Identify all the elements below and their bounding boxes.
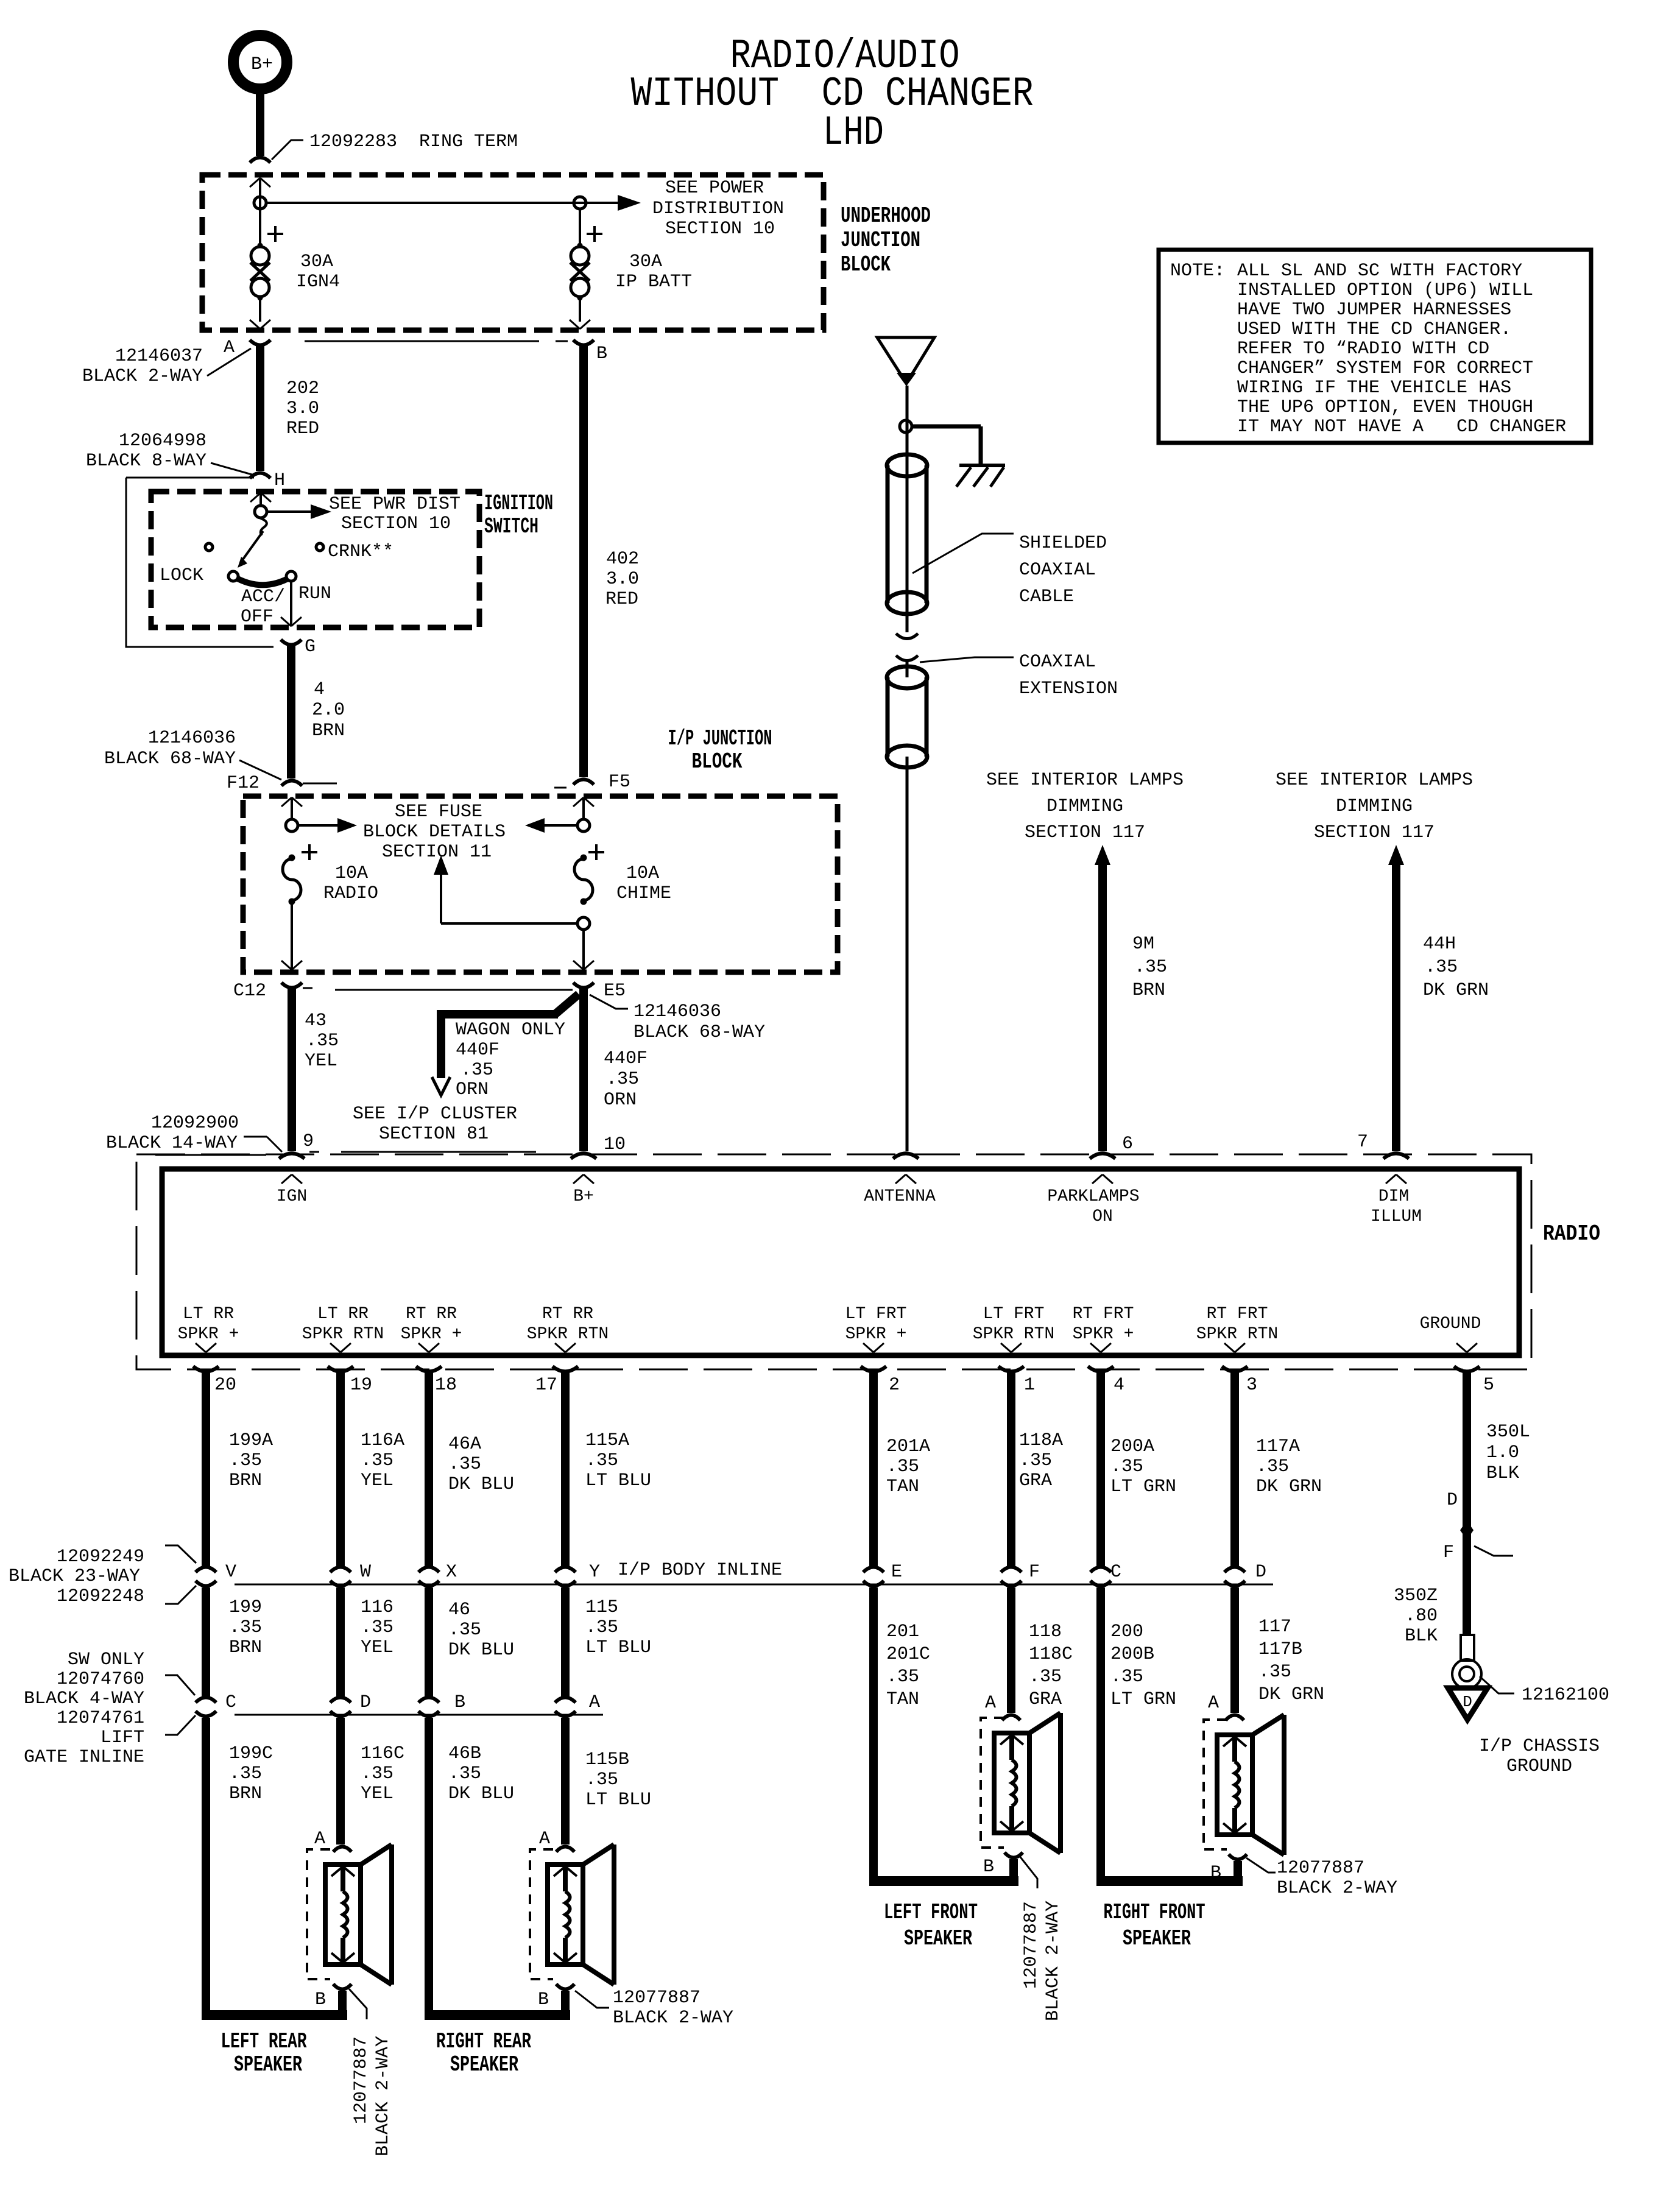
svg-text:ON: ON bbox=[1092, 1207, 1113, 1226]
svg-text:3.0: 3.0 bbox=[606, 569, 639, 590]
svg-text:.35: .35 bbox=[1256, 1456, 1289, 1477]
svg-text:SPEAKER: SPEAKER bbox=[450, 2052, 518, 2077]
svg-text:B: B bbox=[983, 1857, 994, 1877]
svg-text:JUNCTION: JUNCTION bbox=[841, 228, 920, 253]
svg-text:BRN: BRN bbox=[312, 721, 345, 741]
svg-text:.35: .35 bbox=[886, 1667, 919, 1687]
svg-text:B: B bbox=[315, 1989, 326, 2010]
svg-text:.35: .35 bbox=[306, 1031, 339, 1051]
svg-text:SPKR +: SPKR + bbox=[401, 1325, 462, 1344]
svg-text:12162100: 12162100 bbox=[1522, 1685, 1609, 1706]
svg-text:CABLE: CABLE bbox=[1019, 587, 1074, 607]
svg-text:I/P BODY INLINE: I/P BODY INLINE bbox=[618, 1560, 782, 1581]
svg-text:LHD: LHD bbox=[823, 110, 884, 157]
svg-text:SPEAKER: SPEAKER bbox=[234, 2052, 302, 2077]
svg-text:SPKR RTN: SPKR RTN bbox=[973, 1325, 1054, 1344]
svg-text:.35: .35 bbox=[585, 1450, 618, 1471]
svg-text:DK BLU: DK BLU bbox=[448, 1474, 514, 1495]
svg-text:.35: .35 bbox=[448, 1763, 481, 1784]
svg-text:IGNITION: IGNITION bbox=[484, 491, 553, 516]
svg-text:YEL: YEL bbox=[361, 1637, 394, 1658]
svg-text:A: A bbox=[589, 1692, 600, 1713]
svg-text:BLK: BLK bbox=[1486, 1463, 1519, 1484]
svg-text:115A: 115A bbox=[585, 1430, 629, 1451]
svg-text:118: 118 bbox=[1029, 1622, 1062, 1642]
svg-text:TAN: TAN bbox=[886, 1689, 919, 1710]
svg-text:A: A bbox=[539, 1829, 550, 1849]
svg-text:117: 117 bbox=[1258, 1617, 1291, 1637]
svg-text:RADIO: RADIO bbox=[1543, 1221, 1600, 1246]
svg-text:.35: .35 bbox=[361, 1617, 394, 1638]
svg-text:F: F bbox=[1029, 1562, 1040, 1583]
svg-text:SPEAKER: SPEAKER bbox=[1123, 1926, 1191, 1951]
svg-text:RIGHT FRONT: RIGHT FRONT bbox=[1104, 1900, 1205, 1925]
svg-text:BLACK 2-WAY: BLACK 2-WAY bbox=[82, 366, 203, 387]
svg-text:W: W bbox=[360, 1562, 371, 1583]
svg-text:UNDERHOOD: UNDERHOOD bbox=[841, 203, 931, 228]
svg-text:12077887: 12077887 bbox=[1277, 1858, 1364, 1879]
svg-text:DK GRN: DK GRN bbox=[1256, 1477, 1322, 1497]
svg-text:12146036: 12146036 bbox=[148, 728, 236, 749]
svg-text:12092248: 12092248 bbox=[57, 1586, 144, 1607]
svg-text:199: 199 bbox=[229, 1597, 262, 1618]
svg-text:30A: 30A bbox=[629, 252, 662, 272]
svg-text:12077887: 12077887 bbox=[351, 2036, 372, 2124]
svg-text:CHIME: CHIME bbox=[616, 883, 671, 904]
svg-text:SHIELDED: SHIELDED bbox=[1019, 533, 1107, 554]
svg-text:12092283 RING TERM: 12092283 RING TERM bbox=[309, 132, 518, 152]
svg-text:BLACK 8-WAY: BLACK 8-WAY bbox=[86, 451, 206, 471]
svg-text:3.0: 3.0 bbox=[286, 398, 319, 419]
svg-text:.35: .35 bbox=[1110, 1456, 1143, 1477]
svg-text:RT FRT: RT FRT bbox=[1073, 1305, 1134, 1324]
svg-text:.35: .35 bbox=[448, 1454, 481, 1475]
svg-text:10A: 10A bbox=[335, 863, 368, 884]
svg-text:YEL: YEL bbox=[361, 1470, 394, 1491]
svg-text:G: G bbox=[305, 637, 316, 657]
svg-text:12092249: 12092249 bbox=[57, 1547, 144, 1567]
svg-text:17: 17 bbox=[535, 1375, 557, 1396]
svg-text:D: D bbox=[1255, 1562, 1266, 1583]
svg-text:SPKR +: SPKR + bbox=[845, 1325, 907, 1344]
svg-text:BLACK 68-WAY: BLACK 68-WAY bbox=[104, 749, 236, 769]
svg-text:201: 201 bbox=[886, 1622, 919, 1642]
svg-text:200B: 200B bbox=[1110, 1644, 1154, 1665]
svg-text:RADIO: RADIO bbox=[323, 883, 378, 904]
svg-text:DK GRN: DK GRN bbox=[1258, 1684, 1324, 1705]
svg-text:SECTION 10: SECTION 10 bbox=[341, 514, 451, 534]
svg-text:C12: C12 bbox=[233, 981, 266, 1001]
svg-text:BLOCK: BLOCK bbox=[692, 749, 743, 774]
svg-text:SPKR RTN: SPKR RTN bbox=[527, 1325, 609, 1344]
svg-text:SEE INTERIOR LAMPS: SEE INTERIOR LAMPS bbox=[1276, 770, 1473, 791]
svg-text:SEE POWER: SEE POWER bbox=[665, 178, 764, 199]
svg-text:10: 10 bbox=[604, 1134, 626, 1155]
svg-text:.35: .35 bbox=[1258, 1662, 1291, 1682]
svg-text:SPKR +: SPKR + bbox=[178, 1325, 239, 1344]
svg-text:LT FRT: LT FRT bbox=[845, 1305, 907, 1324]
svg-text:LT FRT: LT FRT bbox=[983, 1305, 1045, 1324]
svg-text:LEFT REAR: LEFT REAR bbox=[221, 2029, 307, 2054]
svg-text:B: B bbox=[454, 1692, 465, 1713]
svg-text:ACC/: ACC/ bbox=[241, 587, 285, 607]
svg-text:IGN4: IGN4 bbox=[296, 272, 340, 292]
svg-text:18: 18 bbox=[435, 1375, 457, 1396]
svg-text:SECTION 117: SECTION 117 bbox=[1025, 822, 1145, 843]
svg-text:GROUND: GROUND bbox=[1506, 1756, 1572, 1777]
svg-text:RED: RED bbox=[605, 589, 638, 610]
svg-text:SPEAKER: SPEAKER bbox=[904, 1926, 972, 1951]
svg-text:46A: 46A bbox=[448, 1434, 481, 1455]
svg-text:12074761: 12074761 bbox=[57, 1708, 144, 1729]
svg-text:.35: .35 bbox=[1425, 957, 1458, 978]
svg-text:.35: .35 bbox=[585, 1617, 618, 1638]
svg-text:.35: .35 bbox=[461, 1060, 493, 1081]
svg-text:3: 3 bbox=[1246, 1375, 1257, 1396]
svg-text:BLK: BLK bbox=[1405, 1626, 1438, 1647]
svg-text:SPKR +: SPKR + bbox=[1073, 1325, 1134, 1344]
svg-text:4: 4 bbox=[314, 679, 325, 700]
svg-text:BLACK 4-WAY: BLACK 4-WAY bbox=[24, 1689, 144, 1709]
svg-text:116C: 116C bbox=[361, 1743, 404, 1764]
svg-text:EXTENSION: EXTENSION bbox=[1019, 679, 1118, 699]
svg-text:B: B bbox=[596, 344, 607, 364]
svg-text:BRN: BRN bbox=[229, 1637, 262, 1658]
svg-text:BLOCK: BLOCK bbox=[841, 252, 891, 277]
svg-text:43: 43 bbox=[305, 1011, 326, 1031]
svg-text:REFER TO “RADIO WITH CD: REFER TO “RADIO WITH CD bbox=[1237, 339, 1489, 359]
svg-text:BLACK 23-WAY: BLACK 23-WAY bbox=[9, 1566, 140, 1587]
svg-text:COAXIAL: COAXIAL bbox=[1019, 560, 1096, 581]
svg-text:SEE I/P CLUSTER: SEE I/P CLUSTER bbox=[353, 1104, 517, 1124]
svg-text:350L: 350L bbox=[1486, 1422, 1530, 1442]
svg-text:9M: 9M bbox=[1132, 934, 1154, 955]
svg-text:E: E bbox=[891, 1562, 902, 1583]
svg-text:118A: 118A bbox=[1019, 1430, 1063, 1451]
svg-text:D: D bbox=[360, 1692, 371, 1713]
svg-text:X: X bbox=[446, 1562, 457, 1583]
svg-text:USED WITH THE CD CHANGER.: USED WITH THE CD CHANGER. bbox=[1237, 319, 1511, 340]
svg-text:ALL SL AND SC WITH FACTORY: ALL SL AND SC WITH FACTORY bbox=[1237, 261, 1522, 281]
svg-text:199A: 199A bbox=[229, 1430, 273, 1451]
svg-text:ORN: ORN bbox=[456, 1079, 489, 1100]
svg-text:BRN: BRN bbox=[1132, 980, 1165, 1001]
svg-text:A: A bbox=[224, 337, 235, 358]
svg-text:.35: .35 bbox=[1110, 1667, 1143, 1687]
svg-text:SW ONLY: SW ONLY bbox=[68, 1650, 144, 1670]
svg-text:SPKR RTN: SPKR RTN bbox=[302, 1325, 384, 1344]
svg-text:12074760: 12074760 bbox=[57, 1669, 144, 1690]
svg-text:7: 7 bbox=[1357, 1132, 1368, 1153]
svg-text:.35: .35 bbox=[361, 1763, 394, 1784]
svg-text:200: 200 bbox=[1110, 1622, 1143, 1642]
svg-text:BLACK 68-WAY: BLACK 68-WAY bbox=[634, 1022, 765, 1043]
svg-text:BRN: BRN bbox=[229, 1784, 262, 1804]
svg-text:I/P CHASSIS: I/P CHASSIS bbox=[1479, 1736, 1600, 1757]
svg-text:200A: 200A bbox=[1110, 1436, 1154, 1457]
svg-text:DIMMING: DIMMING bbox=[1336, 796, 1413, 817]
svg-text:10A: 10A bbox=[626, 863, 659, 884]
svg-text:B+: B+ bbox=[573, 1187, 594, 1206]
svg-text:.35: .35 bbox=[1029, 1667, 1062, 1687]
svg-text:IT MAY NOT HAVE A CD CHANGER: IT MAY NOT HAVE A CD CHANGER bbox=[1237, 417, 1566, 437]
svg-text:202: 202 bbox=[286, 378, 319, 399]
svg-text:RT RR: RT RR bbox=[542, 1305, 593, 1324]
svg-text:RED: RED bbox=[286, 418, 319, 439]
svg-text:116: 116 bbox=[361, 1597, 394, 1618]
svg-text:V: V bbox=[225, 1562, 236, 1583]
svg-text:THE UP6 OPTION, EVEN THOUGH: THE UP6 OPTION, EVEN THOUGH bbox=[1237, 397, 1533, 418]
svg-text:115: 115 bbox=[585, 1597, 618, 1618]
svg-text:LIFT: LIFT bbox=[101, 1728, 144, 1748]
svg-text:YEL: YEL bbox=[361, 1784, 394, 1804]
svg-text:NOTE:: NOTE: bbox=[1170, 261, 1225, 281]
svg-text:E5: E5 bbox=[604, 981, 626, 1001]
svg-text:.35: .35 bbox=[229, 1617, 262, 1638]
svg-text:BLACK 2-WAY: BLACK 2-WAY bbox=[1043, 1901, 1064, 2021]
svg-text:GROUND: GROUND bbox=[1420, 1315, 1481, 1333]
svg-text:WAGON ONLY: WAGON ONLY bbox=[456, 1020, 565, 1040]
svg-text:CRNK**: CRNK** bbox=[328, 542, 394, 562]
svg-text:DISTRIBUTION: DISTRIBUTION bbox=[652, 199, 784, 219]
svg-text:D: D bbox=[1463, 1693, 1472, 1711]
svg-text:201C: 201C bbox=[886, 1644, 930, 1665]
svg-text:HAVE TWO JUMPER HARNESSES: HAVE TWO JUMPER HARNESSES bbox=[1237, 300, 1511, 320]
svg-text:LT BLU: LT BLU bbox=[585, 1637, 651, 1658]
svg-text:SEE INTERIOR LAMPS: SEE INTERIOR LAMPS bbox=[986, 770, 1184, 791]
svg-text:1.0: 1.0 bbox=[1486, 1442, 1519, 1463]
svg-text:SWITCH: SWITCH bbox=[484, 514, 538, 539]
svg-text:DIM: DIM bbox=[1378, 1187, 1409, 1206]
svg-text:OFF: OFF bbox=[241, 607, 274, 627]
svg-text:SECTION 10: SECTION 10 bbox=[665, 219, 775, 239]
svg-text:LT BLU: LT BLU bbox=[585, 1470, 651, 1491]
svg-text:.35: .35 bbox=[361, 1450, 394, 1471]
svg-text:LT GRN: LT GRN bbox=[1110, 1477, 1176, 1497]
svg-text:H: H bbox=[274, 470, 285, 491]
svg-text:12077887: 12077887 bbox=[613, 1988, 701, 2008]
svg-text:115B: 115B bbox=[585, 1749, 629, 1770]
svg-text:BLACK 2-WAY: BLACK 2-WAY bbox=[1277, 1878, 1397, 1899]
svg-text:A: A bbox=[985, 1693, 996, 1714]
svg-text:SEE PWR DIST: SEE PWR DIST bbox=[329, 494, 461, 515]
svg-text:44H: 44H bbox=[1423, 934, 1456, 955]
svg-text:BLACK 2-WAY: BLACK 2-WAY bbox=[613, 2008, 733, 2028]
svg-text:5: 5 bbox=[1483, 1375, 1494, 1396]
svg-text:GATE INLINE: GATE INLINE bbox=[24, 1747, 144, 1768]
svg-text:COAXIAL: COAXIAL bbox=[1019, 652, 1096, 673]
svg-text:IGN: IGN bbox=[277, 1187, 307, 1206]
svg-text:.35: .35 bbox=[229, 1763, 262, 1784]
svg-text:LT BLU: LT BLU bbox=[585, 1790, 651, 1810]
svg-text:201A: 201A bbox=[886, 1436, 930, 1457]
svg-text:B+: B+ bbox=[251, 54, 273, 75]
svg-text:19: 19 bbox=[350, 1375, 372, 1396]
svg-text:DK BLU: DK BLU bbox=[448, 1784, 514, 1804]
svg-text:117B: 117B bbox=[1258, 1639, 1302, 1660]
svg-text:46B: 46B bbox=[448, 1743, 481, 1764]
svg-text:46: 46 bbox=[448, 1600, 470, 1620]
svg-text:LT RR: LT RR bbox=[317, 1305, 369, 1324]
svg-text:440F: 440F bbox=[604, 1048, 648, 1069]
svg-text:BLACK 14-WAY: BLACK 14-WAY bbox=[106, 1133, 238, 1154]
svg-text:D: D bbox=[1447, 1490, 1458, 1511]
svg-text:350Z: 350Z bbox=[1394, 1586, 1438, 1606]
svg-text:A: A bbox=[1208, 1693, 1219, 1714]
svg-text:YEL: YEL bbox=[305, 1051, 337, 1071]
svg-text:2: 2 bbox=[889, 1375, 900, 1396]
svg-text:4: 4 bbox=[1114, 1375, 1124, 1396]
svg-text:.35: .35 bbox=[585, 1770, 618, 1790]
svg-text:12077887: 12077887 bbox=[1021, 1901, 1042, 1989]
svg-text:2.0: 2.0 bbox=[312, 700, 345, 721]
svg-text:12146037: 12146037 bbox=[115, 346, 203, 367]
svg-text:RT FRT: RT FRT bbox=[1207, 1305, 1268, 1324]
svg-text:DK GRN: DK GRN bbox=[1423, 980, 1489, 1001]
svg-text:GRA: GRA bbox=[1029, 1689, 1062, 1710]
svg-text:.35: .35 bbox=[1134, 957, 1167, 978]
svg-text:ILLUM: ILLUM bbox=[1371, 1207, 1422, 1226]
svg-text:SECTION 81: SECTION 81 bbox=[379, 1124, 489, 1145]
svg-text:.35: .35 bbox=[886, 1456, 919, 1477]
svg-text:Y: Y bbox=[589, 1562, 600, 1583]
svg-text:LOCK: LOCK bbox=[160, 565, 203, 586]
svg-text:CHANGER” SYSTEM FOR CORRECT: CHANGER” SYSTEM FOR CORRECT bbox=[1237, 358, 1533, 379]
svg-text:12092900: 12092900 bbox=[151, 1113, 239, 1134]
svg-text:402: 402 bbox=[606, 549, 639, 570]
svg-text:SEE FUSE: SEE FUSE bbox=[395, 802, 482, 822]
svg-text:C: C bbox=[1110, 1562, 1121, 1583]
svg-text:BRN: BRN bbox=[229, 1470, 262, 1491]
svg-text:B: B bbox=[538, 1989, 549, 2010]
svg-text:DK BLU: DK BLU bbox=[448, 1640, 514, 1661]
svg-text:.35: .35 bbox=[606, 1069, 639, 1090]
svg-text:RUN: RUN bbox=[298, 584, 331, 604]
svg-text:ANTENNA: ANTENNA bbox=[864, 1187, 936, 1206]
svg-text:SECTION 117: SECTION 117 bbox=[1314, 822, 1435, 843]
svg-text:F5: F5 bbox=[609, 772, 630, 793]
svg-text:.35: .35 bbox=[1019, 1450, 1052, 1471]
svg-text:6: 6 bbox=[1122, 1134, 1133, 1154]
svg-text:440F: 440F bbox=[456, 1040, 499, 1061]
svg-text:ORN: ORN bbox=[604, 1090, 637, 1110]
svg-text:117A: 117A bbox=[1256, 1436, 1300, 1457]
svg-text:RT RR: RT RR bbox=[406, 1305, 457, 1324]
svg-text:.35: .35 bbox=[229, 1450, 262, 1471]
svg-text:SECTION 11: SECTION 11 bbox=[382, 842, 492, 863]
svg-text:20: 20 bbox=[214, 1375, 236, 1396]
svg-text:118C: 118C bbox=[1029, 1644, 1073, 1665]
svg-text:BLACK 2-WAY: BLACK 2-WAY bbox=[373, 2036, 394, 2156]
svg-text:WIRING IF THE VEHICLE HAS: WIRING IF THE VEHICLE HAS bbox=[1237, 378, 1511, 398]
svg-text:I/P JUNCTION: I/P JUNCTION bbox=[668, 726, 772, 751]
svg-text:LEFT FRONT: LEFT FRONT bbox=[884, 1900, 978, 1925]
svg-text:1: 1 bbox=[1024, 1375, 1035, 1396]
svg-text:12064998: 12064998 bbox=[119, 431, 206, 451]
svg-text:30A: 30A bbox=[300, 252, 333, 272]
svg-text:.80: .80 bbox=[1405, 1606, 1438, 1626]
svg-text:GRA: GRA bbox=[1019, 1470, 1052, 1491]
svg-text:SPKR RTN: SPKR RTN bbox=[1196, 1325, 1278, 1344]
svg-text:C: C bbox=[225, 1692, 236, 1713]
svg-text:LT RR: LT RR bbox=[183, 1305, 234, 1324]
svg-text:F: F bbox=[1443, 1542, 1454, 1563]
svg-text:BLOCK DETAILS: BLOCK DETAILS bbox=[363, 822, 506, 842]
svg-text:IP BATT: IP BATT bbox=[615, 272, 692, 292]
svg-text:A: A bbox=[314, 1829, 325, 1849]
svg-text:.35: .35 bbox=[448, 1620, 481, 1640]
svg-text:9: 9 bbox=[303, 1131, 314, 1152]
svg-text:PARKLAMPS: PARKLAMPS bbox=[1047, 1187, 1139, 1206]
svg-text:INSTALLED OPTION (UP6) WILL: INSTALLED OPTION (UP6) WILL bbox=[1237, 280, 1533, 301]
svg-text:12146036: 12146036 bbox=[634, 1001, 721, 1022]
svg-text:199C: 199C bbox=[229, 1743, 273, 1764]
svg-text:DIMMING: DIMMING bbox=[1046, 796, 1123, 817]
svg-text:LT GRN: LT GRN bbox=[1110, 1689, 1176, 1710]
svg-text:F12: F12 bbox=[227, 773, 259, 794]
svg-text:116A: 116A bbox=[361, 1430, 404, 1451]
svg-text:TAN: TAN bbox=[886, 1477, 919, 1497]
svg-text:RIGHT REAR: RIGHT REAR bbox=[436, 2029, 531, 2054]
